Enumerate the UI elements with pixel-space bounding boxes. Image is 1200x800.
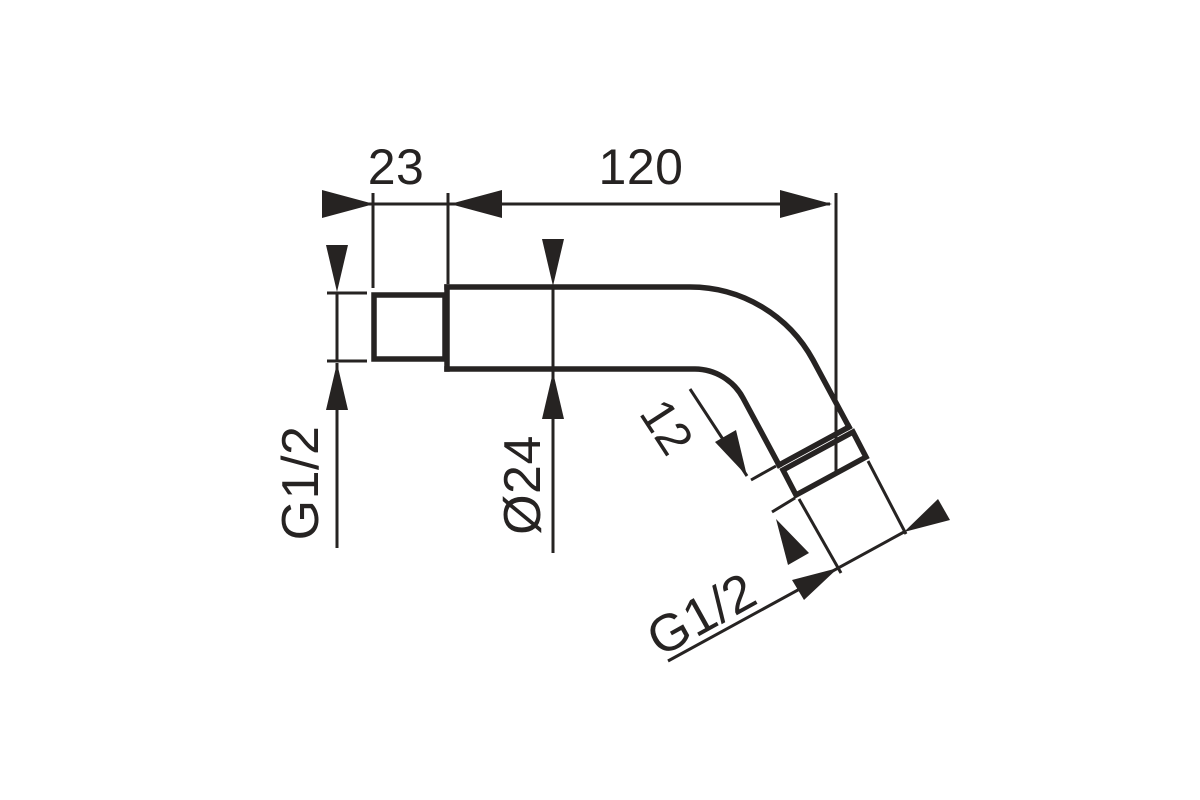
arrowhead-120-right	[780, 190, 832, 218]
arrowheads	[322, 190, 950, 600]
arrowhead-23-left	[322, 190, 374, 218]
outlet-extension-line-right	[868, 461, 906, 534]
pipe-body	[374, 287, 866, 495]
dim-diameter-label: Ø24	[494, 435, 552, 535]
thread-length-tick-bottom	[772, 498, 795, 512]
outlet-extension-line-left	[799, 499, 841, 573]
dim-thread-length-label: 12	[629, 390, 703, 464]
arrowhead-outlet-left	[792, 568, 838, 600]
thread-length-tick-top	[751, 466, 776, 480]
drawing-canvas: 23 120 G1/2 Ø24 12 G1/2	[0, 0, 1200, 800]
dim-outlet-thread-label: G1/2	[638, 562, 766, 668]
arrowhead-diameter-top	[542, 239, 564, 286]
arrowhead-diameter-bottom	[542, 372, 564, 419]
arrowhead-120-left	[450, 190, 502, 218]
dim-120-label: 120	[599, 139, 684, 195]
arrowhead-thread-length-bottom	[776, 519, 809, 565]
dim-inlet-thread-label: G1/2	[272, 426, 330, 541]
arrowhead-inlet-bottom	[326, 363, 348, 410]
technical-drawing: 23 120 G1/2 Ø24 12 G1/2	[0, 0, 1200, 800]
arrowhead-outlet-right	[904, 499, 950, 532]
arrowhead-inlet-top	[326, 245, 348, 292]
inlet-fitting-outline	[374, 295, 445, 359]
dim-23-label: 23	[368, 139, 425, 195]
dimension-lines	[326, 193, 906, 661]
